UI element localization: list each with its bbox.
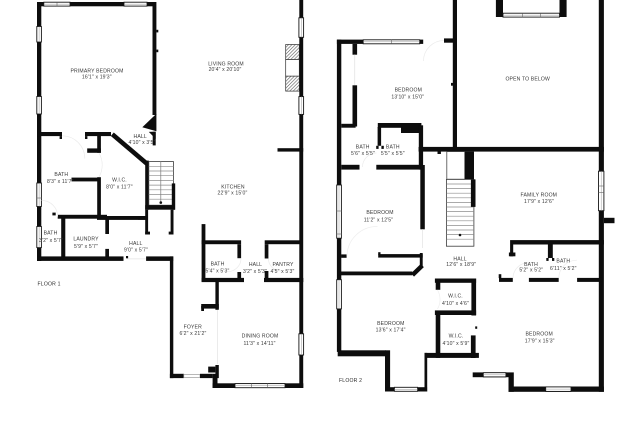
svg-text:6'2" x 21'2": 6'2" x 21'2" — [180, 331, 207, 337]
svg-text:5'5" x 5'5": 5'5" x 5'5" — [381, 151, 405, 157]
svg-text:4'10" x 5'9": 4'10" x 5'9" — [443, 341, 470, 347]
svg-text:5'6" x 5'5": 5'6" x 5'5" — [351, 151, 375, 157]
svg-text:12'6" x 18'9": 12'6" x 18'9" — [446, 262, 476, 268]
svg-text:5'2" x 5'2": 5'2" x 5'2" — [519, 268, 543, 274]
svg-text:17'9" x 12'6": 17'9" x 12'6" — [524, 199, 554, 205]
svg-text:FLOOR 1: FLOOR 1 — [38, 281, 61, 287]
svg-text:BATH: BATH — [211, 261, 225, 267]
svg-text:BATH: BATH — [386, 144, 400, 150]
svg-text:BATH: BATH — [54, 172, 68, 178]
svg-text:9'0" x 5'7": 9'0" x 5'7" — [124, 247, 148, 253]
svg-text:BATH: BATH — [556, 258, 570, 264]
svg-text:FOYER: FOYER — [184, 324, 202, 330]
svg-text:HALL: HALL — [134, 134, 147, 140]
svg-text:22'9" x 15'0": 22'9" x 15'0" — [218, 191, 248, 197]
svg-text:FAMILY ROOM: FAMILY ROOM — [521, 192, 558, 198]
svg-text:5'9" x 5'7": 5'9" x 5'7" — [74, 244, 98, 250]
svg-text:BEDROOM: BEDROOM — [366, 210, 393, 216]
svg-text:13'10" x 15'0": 13'10" x 15'0" — [391, 95, 424, 101]
svg-text:6'11" x 5'2": 6'11" x 5'2" — [550, 266, 577, 272]
svg-text:8'3" x 11'7": 8'3" x 11'7" — [47, 179, 74, 185]
svg-text:KITCHEN: KITCHEN — [221, 184, 245, 190]
svg-text:11'3" x 14'11": 11'3" x 14'11" — [243, 341, 275, 347]
svg-text:W.I.C.: W.I.C. — [449, 334, 464, 340]
svg-text:BEDROOM: BEDROOM — [377, 321, 404, 327]
svg-text:4'5" x 5'3": 4'5" x 5'3" — [271, 269, 295, 275]
svg-text:BEDROOM: BEDROOM — [395, 88, 422, 94]
svg-text:W.I.C.: W.I.C. — [448, 294, 463, 300]
svg-text:5'4" x 5'3": 5'4" x 5'3" — [206, 269, 230, 275]
svg-text:3'2" x 5'7": 3'2" x 5'7" — [39, 238, 63, 244]
svg-text:W.I.C.: W.I.C. — [112, 178, 127, 184]
svg-text:PANTRY: PANTRY — [272, 262, 294, 268]
svg-text:17'9" x 15'3": 17'9" x 15'3" — [525, 338, 555, 344]
svg-text:11'2" x 12'5": 11'2" x 12'5" — [364, 218, 394, 224]
svg-text:OPEN TO BELOW: OPEN TO BELOW — [505, 76, 550, 82]
svg-text:3'2" x 5'3": 3'2" x 5'3" — [243, 269, 267, 275]
svg-text:DINING ROOM: DINING ROOM — [242, 333, 279, 339]
svg-text:16'1" x 19'3": 16'1" x 19'3" — [82, 74, 112, 80]
svg-text:20'4" x 20'10": 20'4" x 20'10" — [209, 67, 242, 73]
svg-text:13'6" x 17'4": 13'6" x 17'4" — [376, 327, 406, 333]
svg-text:BATH: BATH — [44, 230, 58, 236]
svg-text:HALL: HALL — [249, 262, 262, 268]
svg-text:4'10" x 4'6": 4'10" x 4'6" — [442, 301, 469, 307]
svg-text:HALL: HALL — [129, 241, 142, 247]
svg-text:4'10" x 3'5": 4'10" x 3'5" — [129, 140, 156, 146]
svg-text:BEDROOM: BEDROOM — [526, 332, 553, 338]
svg-text:8'0" x 11'7": 8'0" x 11'7" — [106, 185, 133, 191]
svg-text:LAUNDRY: LAUNDRY — [73, 237, 99, 243]
svg-text:FLOOR 2: FLOOR 2 — [339, 378, 362, 384]
svg-text:BATH: BATH — [356, 144, 370, 150]
